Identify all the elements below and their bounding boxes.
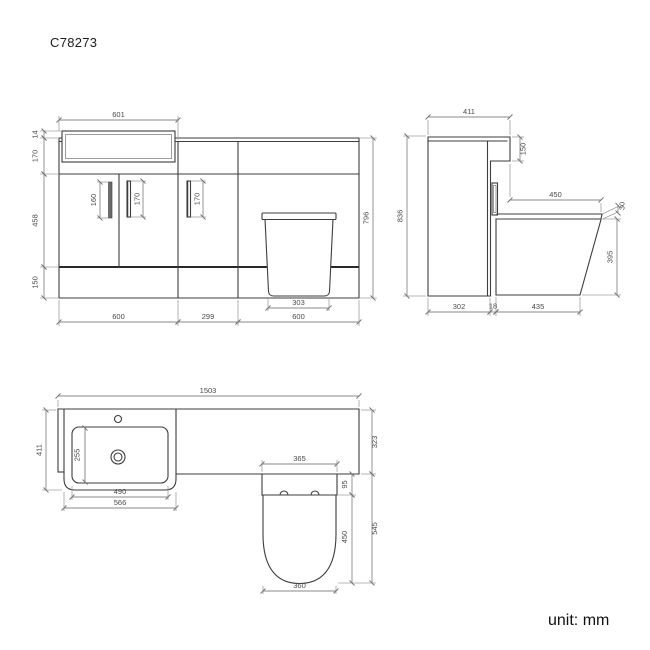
sink-bowl — [72, 427, 168, 483]
dim-front-mid-width: 299 — [202, 312, 215, 321]
dim-side-gap: 18 — [489, 302, 497, 311]
dim-side-overall-height: 836 — [396, 210, 405, 223]
dim-plan-recess-width: 365 — [293, 454, 306, 463]
toilet-seat-front — [262, 213, 336, 220]
toilet-seat-plan — [263, 495, 336, 584]
dim-handle-right: 170 — [193, 193, 202, 206]
dim-handle-left: 160 — [89, 194, 98, 207]
drain-inner — [114, 453, 122, 461]
handle-left — [109, 182, 113, 218]
dim-side-pan-depth: 435 — [532, 302, 545, 311]
unit-label: unit: mm — [548, 612, 609, 630]
dim-front-wc-width: 600 — [292, 312, 305, 321]
technical-drawing: 601 14 170 458 150 160 170 — [0, 0, 650, 650]
dim-handle-mid: 170 — [133, 193, 142, 206]
dim-front-pan-width: 303 — [292, 298, 305, 307]
dim-plan-overall-depth: 545 — [370, 522, 379, 535]
dim-front-vanity-width: 600 — [112, 312, 125, 321]
front-view: 601 14 170 458 150 160 170 — [31, 110, 378, 326]
dim-front-overall-height: 796 — [362, 212, 371, 225]
dim-plan-seat-setback: 95 — [340, 480, 349, 488]
dim-plan-seat-length: 450 — [340, 531, 349, 544]
dim-side-worktop-depth: 411 — [463, 107, 475, 116]
dim-side-seat-depth: 450 — [549, 190, 562, 199]
dim-front-basin-width: 601 — [112, 110, 125, 119]
dim-side-worktop-drop: 150 — [519, 143, 528, 156]
dim-plan-bowl-depth: 255 — [73, 449, 82, 462]
drain-outer — [111, 450, 125, 464]
side-view: 411 150 836 450 30 395 — [396, 107, 627, 316]
tap-hole — [115, 416, 122, 423]
basin-front — [62, 131, 175, 162]
dim-side-cabinet-depth: 302 — [453, 302, 466, 311]
dim-plan-overall-width: 1503 — [200, 386, 217, 395]
dim-plan-worktop-depth: 323 — [370, 436, 379, 449]
drawing-page: C78273 — [0, 0, 650, 650]
dim-front-door-height: 458 — [31, 214, 40, 227]
dim-front-plinth-height: 150 — [31, 276, 40, 289]
dim-side-seat-thickness: 30 — [618, 202, 627, 210]
handle-side — [492, 183, 498, 215]
dim-plan-basin-unit-width: 566 — [114, 498, 127, 507]
plan-view: 1503 411 255 490 566 323 — [35, 386, 380, 594]
dim-front-basin-overhang: 14 — [31, 130, 40, 138]
dim-side-pan-height: 395 — [606, 251, 615, 264]
dim-plan-left-depth: 411 — [35, 444, 44, 456]
dim-front-worktop-band: 170 — [31, 150, 40, 163]
toilet-pan-front — [265, 219, 333, 296]
dim-plan-bowl-width: 490 — [114, 487, 127, 496]
dim-plan-seat-width: 360 — [293, 581, 306, 590]
